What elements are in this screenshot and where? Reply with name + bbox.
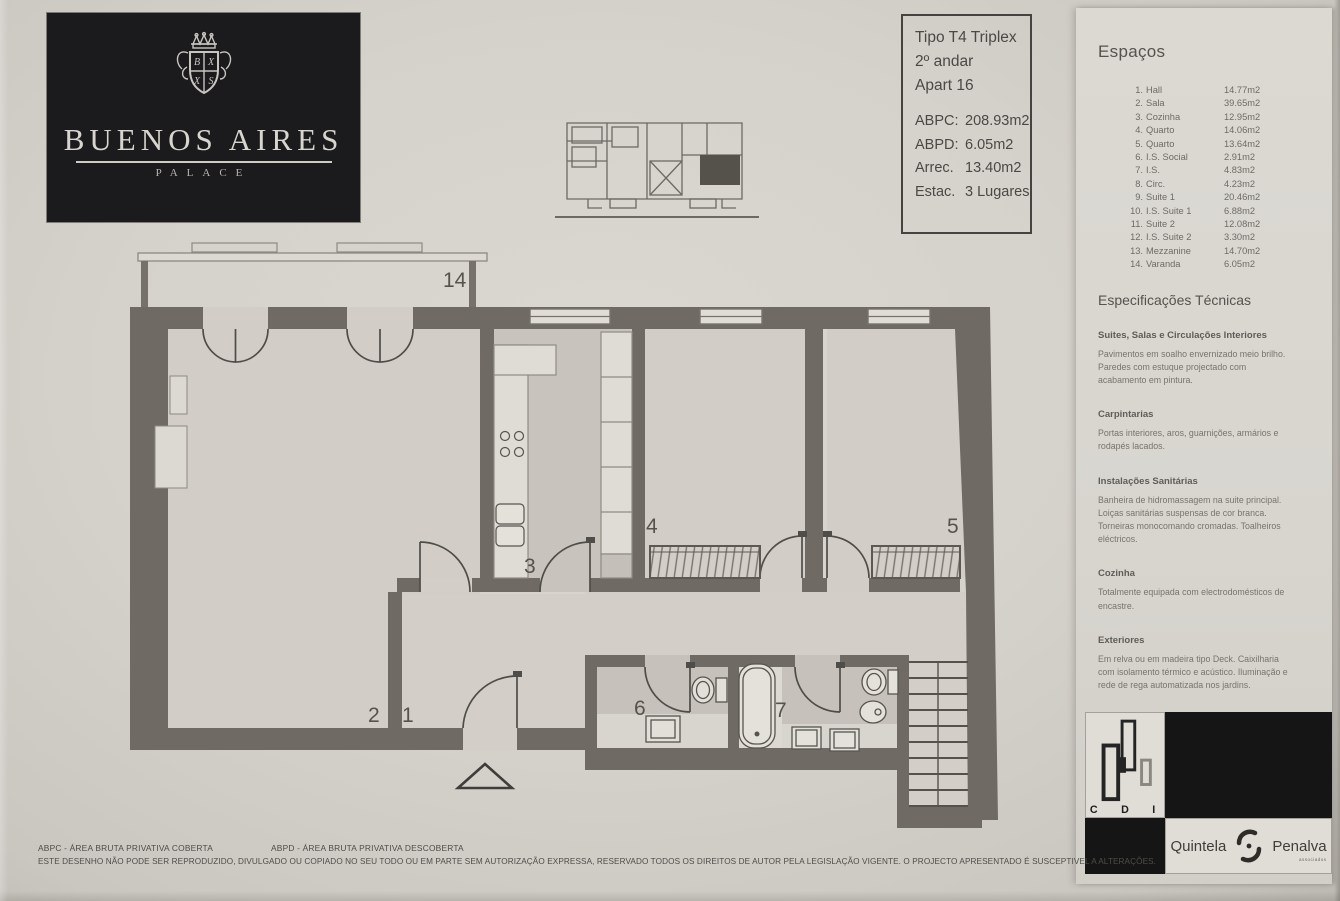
wall-niche (170, 376, 187, 414)
room-label: 3 (524, 555, 536, 578)
room-label: 2 (368, 704, 380, 727)
balcony (138, 243, 487, 308)
scanned-sheet: BX XS BUENOS AIRES PALACE Tipo T4 Triple… (0, 0, 1340, 901)
room-label: 7 (775, 699, 787, 722)
wall-niche (155, 426, 187, 488)
room-label: 4 (646, 515, 658, 538)
abbr-abpc: ABPC - ÁREA BRUTA PRIVATIVA COBERTA (38, 843, 213, 853)
entrance-marker (458, 764, 512, 788)
abbr-abpd: ABPD - ÁREA BRUTA PRIVATIVA DESCOBERTA (271, 843, 464, 853)
copyright-disclaimer: ESTE DESENHO NÃO PODE SER REPRODUZIDO, D… (38, 857, 1156, 866)
room-label: 1 (402, 704, 414, 727)
room-label: 14 (443, 269, 467, 292)
room-label: 5 (947, 515, 959, 538)
room-label: 6 (634, 697, 646, 720)
floor-plan: 142134567 (0, 0, 1340, 901)
area-abbreviations: ABPC - ÁREA BRUTA PRIVATIVA COBERTAABPD … (38, 843, 522, 853)
